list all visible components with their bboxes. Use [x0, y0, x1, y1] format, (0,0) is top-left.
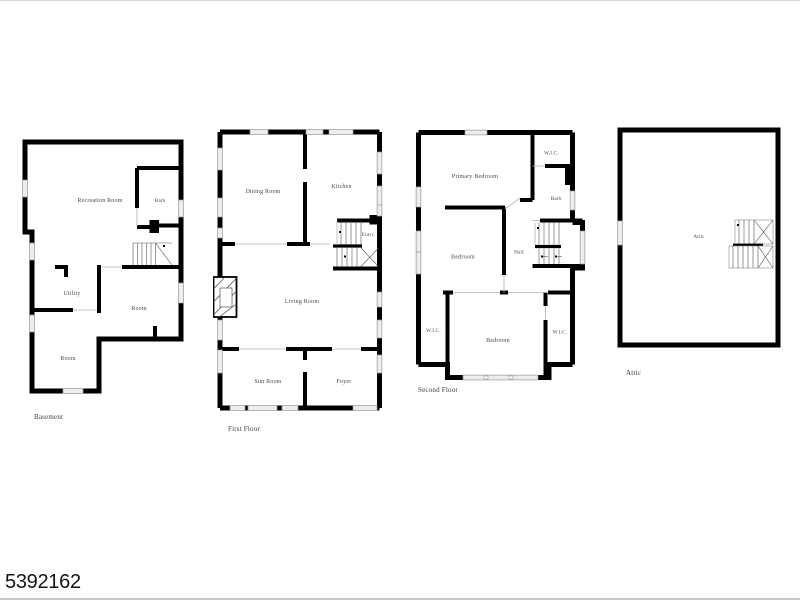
room-label-attic: Attic: [693, 234, 705, 240]
basement-walls: [25, 142, 181, 391]
room-label-recreation: Recreation Room: [77, 198, 122, 204]
room-label-living: Living Room: [285, 299, 320, 305]
room-label-foyer: Foyer: [337, 379, 352, 385]
first-floor-plan: Dining Room Kitchen Entry Living Room Su…: [213, 124, 389, 436]
hall-staircase: [537, 223, 562, 265]
basement-windows: [23, 180, 184, 393]
attic-windows: [618, 221, 623, 245]
basement-open-boundaries: [73, 208, 137, 310]
floor-label-attic: Attic: [626, 369, 641, 377]
room-label-primary-bedroom: Primary Bedroom: [452, 174, 498, 180]
attic-room-labels: Attic: [693, 234, 705, 240]
room-label-hall: Hall: [514, 250, 524, 256]
room-label-kitchen: Kitchen: [331, 184, 351, 190]
attic-floor-plan: Attic Attic: [616, 126, 786, 378]
first-floor-open-boundaries: [235, 221, 361, 350]
room-label-room-middle: Room: [131, 306, 147, 312]
floor-label-second: Second Floor: [418, 386, 458, 394]
entry-staircase: [337, 221, 379, 267]
listing-id: 5392162: [5, 570, 81, 594]
room-label-wic-top: W.I.C.: [544, 151, 559, 157]
basement-floor-plan: Recreation Room Bath Utility Room Room B…: [20, 136, 190, 426]
floor-plan-sheet: Recreation Room Bath Utility Room Room B…: [0, 0, 800, 600]
second-floor-plan: Primary Bedroom W.I.C. Bath Bedroom Hall…: [410, 124, 590, 396]
room-label-bedroom-middle: Bedroom: [451, 255, 475, 261]
room-label-room-lower: Room: [60, 356, 76, 362]
basement-staircase: [133, 243, 172, 265]
room-label-wic-left: W.I.C.: [426, 328, 441, 334]
fireplace-chimney: [214, 277, 237, 317]
room-label-entry: Entry: [362, 232, 375, 238]
room-label-utility: Utility: [63, 291, 80, 297]
room-label-sun: Sun Room: [254, 379, 281, 385]
first-floor-room-labels: Dining Room Kitchen Entry Living Room Su…: [245, 184, 374, 385]
floor-label-first: First Floor: [228, 425, 260, 433]
room-label-dining: Dining Room: [245, 189, 280, 195]
attic-staircase: [729, 220, 773, 268]
floor-label-basement: Basement: [34, 413, 63, 421]
frame-border-top: [0, 0, 800, 1]
room-label-second-bath: Bath: [551, 196, 562, 202]
room-label-basement-bath: Bath: [155, 198, 166, 204]
room-label-bedroom-lower: Bedroom: [486, 338, 510, 344]
room-label-wic-right: W.I.C.: [553, 330, 568, 336]
first-floor-walls: [220, 132, 380, 408]
